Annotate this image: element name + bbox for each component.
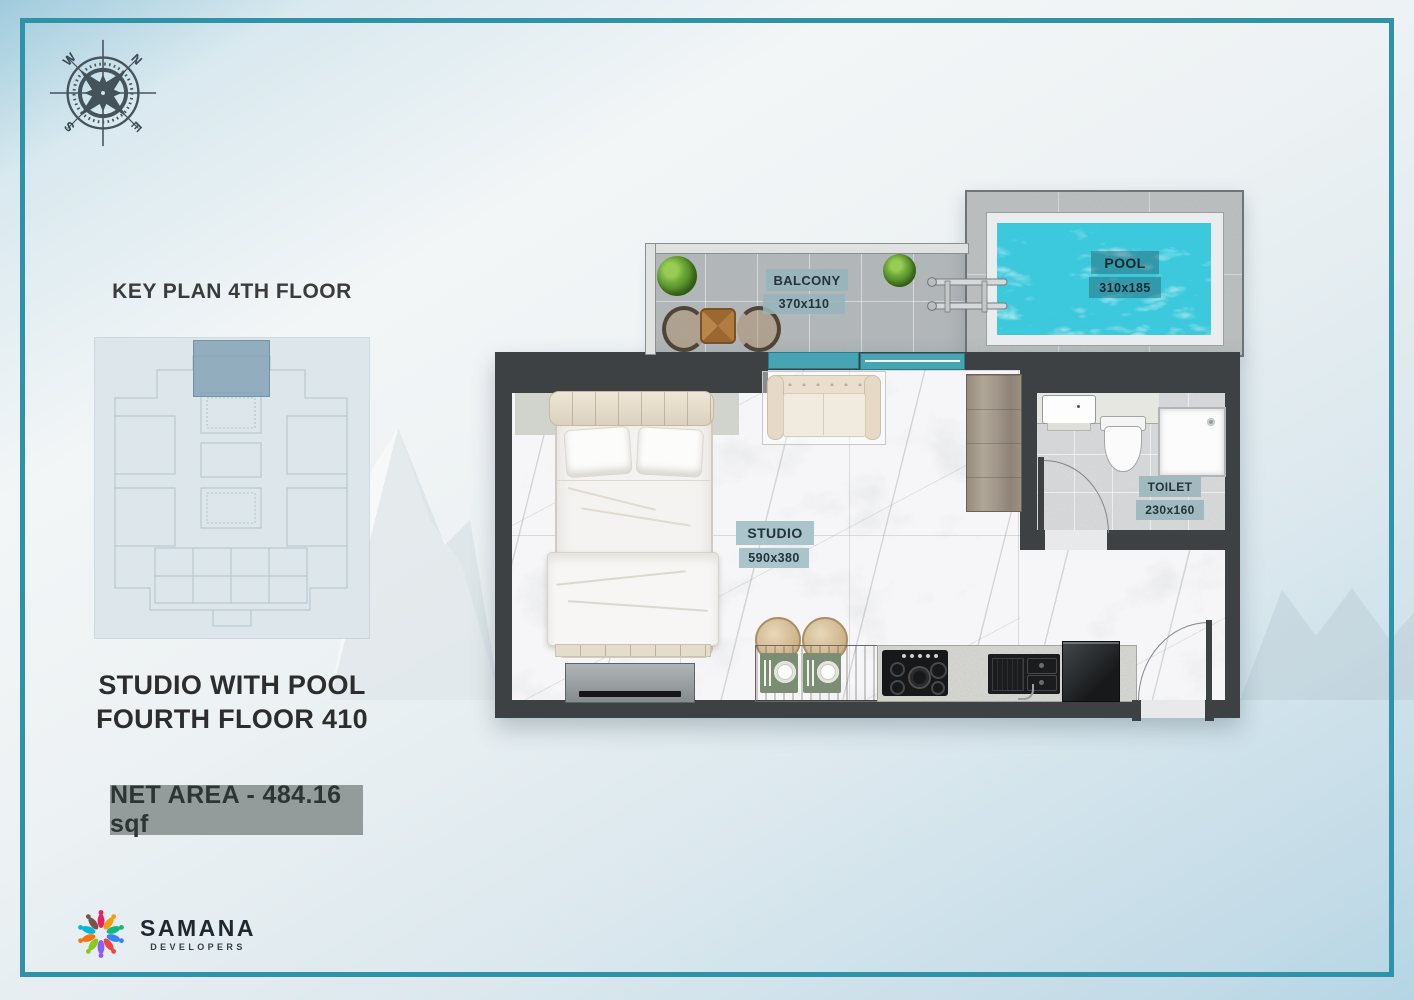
brand-tagline: DEVELOPERS: [140, 942, 256, 952]
unit-title-line1: STUDIO WITH POOL: [0, 668, 464, 702]
plant-icon: [883, 254, 916, 287]
pool-ladder: [925, 275, 1015, 320]
bed-foot-bench: [555, 644, 711, 657]
toilet-door-threshold: [1045, 530, 1107, 550]
sink: [1042, 395, 1096, 424]
place-setting: [803, 653, 841, 693]
studio-size-label: 590x380: [739, 548, 809, 568]
tv: [579, 691, 681, 697]
bed-headboard: [549, 391, 714, 426]
entrance-door-leaf: [1206, 620, 1212, 702]
net-area-badge: NET AREA - 484.16 sqf: [110, 785, 363, 835]
shower-tray: [1158, 407, 1226, 477]
entrance-threshold: [1140, 700, 1206, 718]
sofa: [762, 371, 886, 445]
toilet-size-label: 230x160: [1136, 500, 1204, 520]
pillow: [563, 426, 632, 478]
toilet-door-leaf: [1038, 457, 1044, 532]
unit-title-line2: FOURTH FLOOR 410: [0, 702, 464, 736]
brand-name: SAMANA: [140, 916, 256, 940]
pillow: [636, 426, 704, 477]
fridge: [1062, 641, 1120, 702]
toilet-label: TOILET: [1139, 476, 1201, 497]
kitchen-sink: [988, 654, 1060, 694]
place-setting: [760, 653, 798, 693]
pool-size-label: 310x185: [1089, 277, 1161, 298]
key-plan-panel: [95, 338, 369, 638]
balcony-door-panel: [768, 352, 859, 369]
key-plan-unit-highlight: [193, 340, 270, 397]
studio-label: STUDIO: [736, 521, 814, 545]
balcony-wall-left: [645, 243, 656, 355]
compass-rose-icon: W N S E: [44, 34, 162, 152]
balcony-size-label: 370x110: [763, 294, 845, 314]
balcony-wall-top: [645, 243, 969, 254]
key-plan-title: KEY PLAN 4TH FLOOR: [0, 280, 464, 304]
wall-top-left: [512, 370, 768, 393]
balcony-table: [700, 308, 736, 344]
brand-burst-icon: [74, 907, 128, 961]
brand-logo: SAMANA DEVELOPERS: [74, 905, 256, 963]
unit-title: STUDIO WITH POOL FOURTH FLOOR 410: [0, 668, 464, 736]
bed-throw-blanket: [547, 552, 719, 646]
entrance-jamb: [1132, 700, 1141, 721]
tv-console: [565, 663, 695, 703]
entrance-jamb: [1205, 700, 1214, 721]
wardrobe: [966, 374, 1022, 512]
balcony-label: BALCONY: [766, 269, 848, 291]
cooktop: [882, 650, 948, 696]
plant-icon: [657, 256, 697, 296]
balcony-door-panel: [860, 353, 965, 370]
pool-label: POOL: [1091, 251, 1159, 274]
